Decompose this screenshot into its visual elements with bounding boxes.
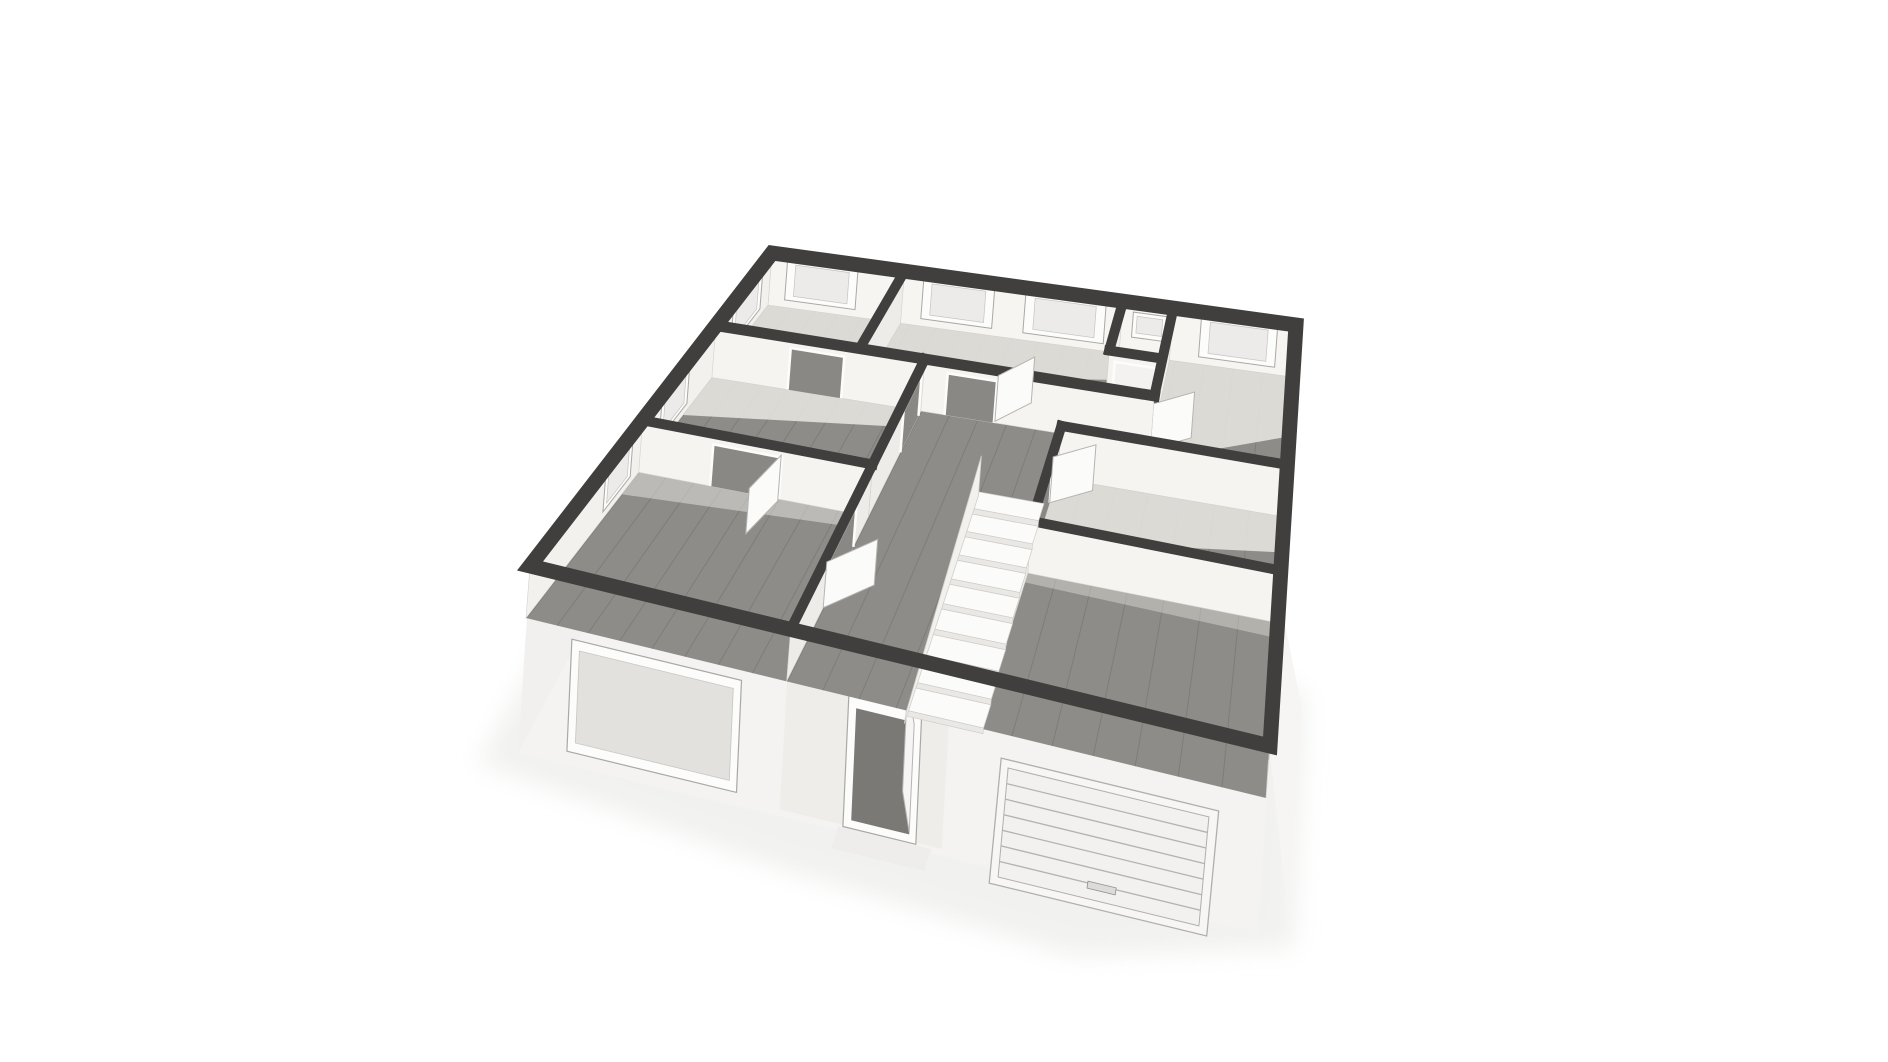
floorplan-3d-render [0, 0, 1888, 1062]
window-glass [1136, 316, 1163, 336]
floorplan-viewport[interactable] [0, 0, 1888, 1062]
